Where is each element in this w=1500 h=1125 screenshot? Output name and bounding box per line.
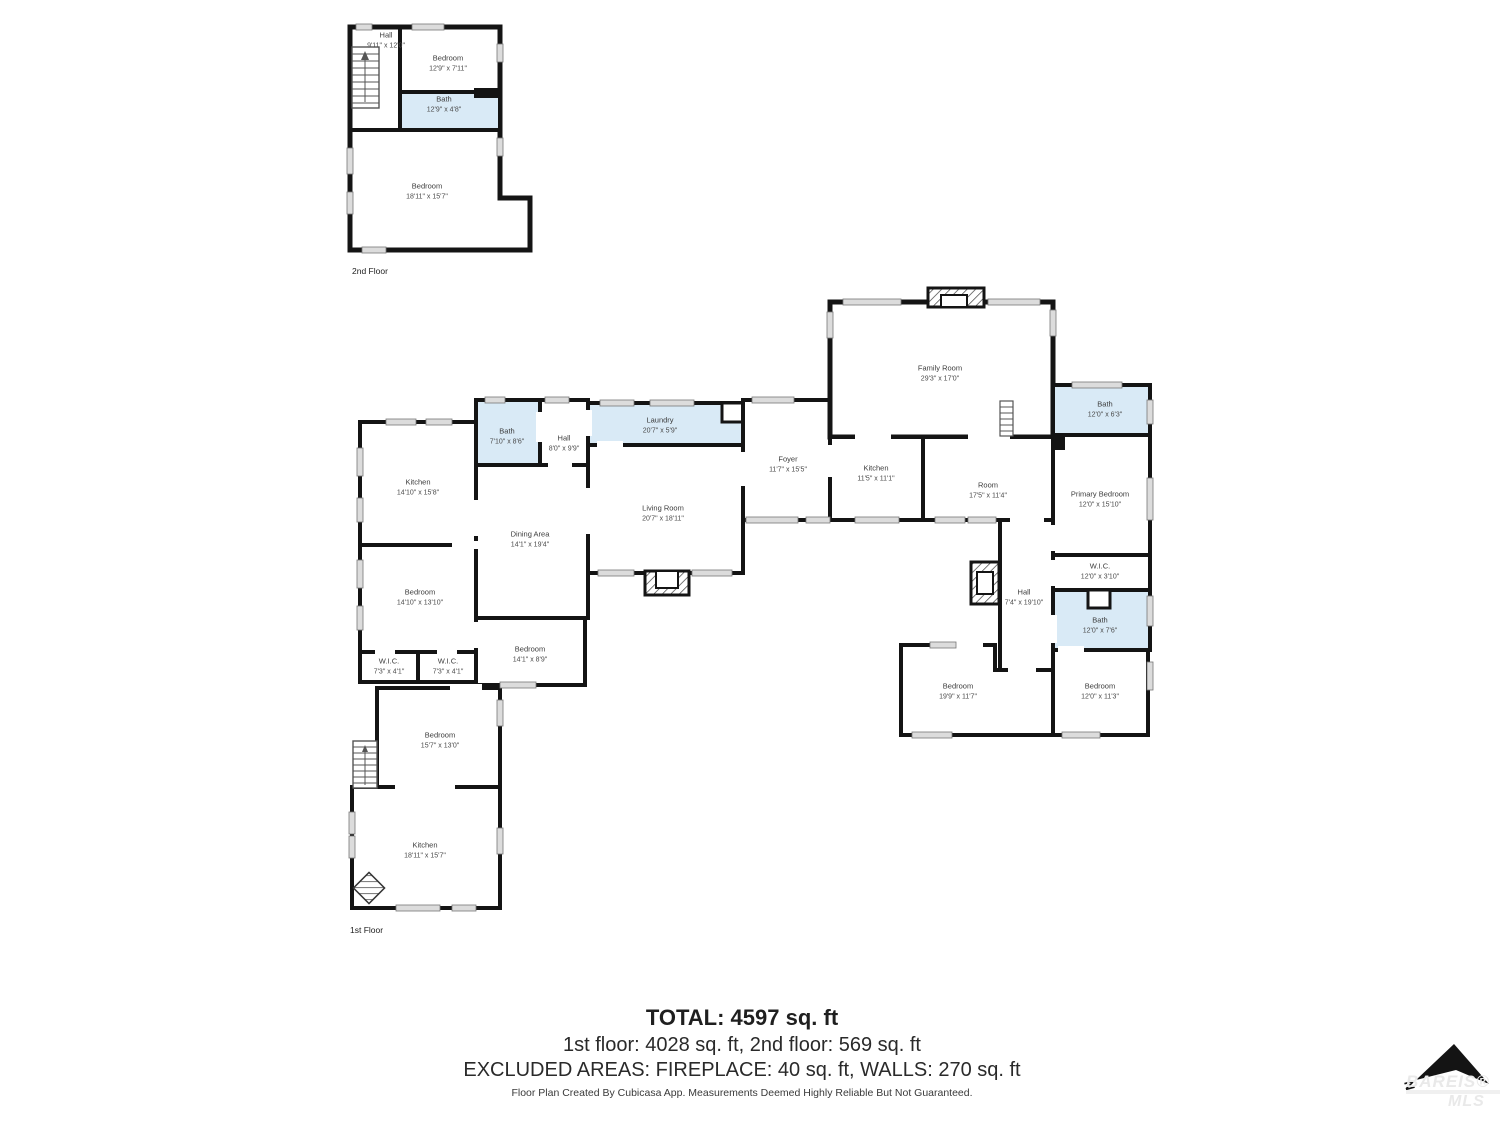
area-summary: TOTAL: 4597 sq. ft 1st floor: 4028 sq. f…: [0, 1003, 1484, 1083]
total-area: TOTAL: 4597 sq. ft: [0, 1003, 1484, 1033]
mls-watermark: BAREIS® MLS: [1406, 1073, 1500, 1110]
stairs-up-icon: [352, 47, 379, 108]
first-floor-label: 1st Floor: [350, 925, 383, 935]
watermark-line2: MLS: [1406, 1090, 1500, 1110]
watermark-line1: BAREIS®: [1406, 1073, 1500, 1090]
disclaimer-text: Floor Plan Created By Cubicasa App. Meas…: [0, 1087, 1484, 1099]
second-floor-label: 2nd Floor: [352, 266, 388, 276]
floor-areas: 1st floor: 4028 sq. ft, 2nd floor: 569 s…: [0, 1033, 1484, 1058]
first-floor-plan: [349, 288, 1153, 911]
floor-plan-page: N Hall9'11" x 12'0" Bedroom12'9" x 7'11"…: [0, 0, 1500, 1125]
second-floor-plan: [347, 24, 530, 253]
excluded-areas: EXCLUDED AREAS: FIREPLACE: 40 sq. ft, WA…: [0, 1058, 1484, 1083]
floor-plan-drawing: N: [0, 0, 1500, 1125]
